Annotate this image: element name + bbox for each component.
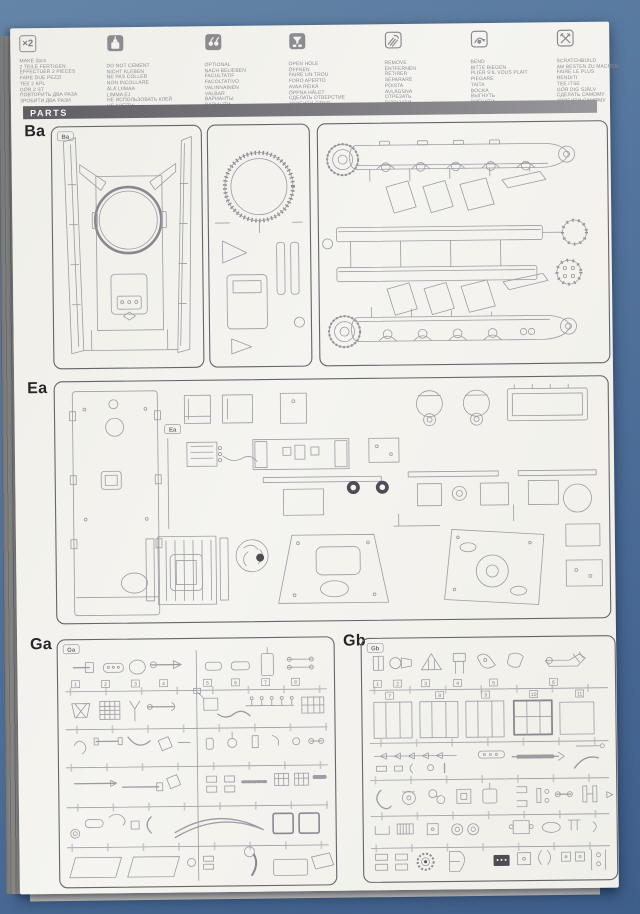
legend-column-make2: ×2 MAKE 2pcs 2 TEILE FERTIGEN EFFECTUER … (19, 34, 108, 105)
legend-text-remove: REMOVE ENTFERNEN RETIRER SEPARARE POISTA… (385, 60, 474, 107)
legend-text-no-cement: DO NOT CEMENT NICHT KLEBEN NE PAS COLLER… (107, 63, 196, 110)
no-glue-icon (106, 34, 124, 52)
svg-text:2: 2 (396, 682, 399, 688)
svg-text:6: 6 (552, 680, 555, 686)
svg-text:7: 7 (388, 694, 391, 700)
legend-column-optional: OPTIONAL NACH BELIEBEN FACULTATIF FACOLT… (204, 32, 293, 109)
legend-column-open-hole: OPEN HOLE ÖFFNEN FAIRE UN TROU FORO APER… (288, 31, 377, 108)
scratchbuild-icon (556, 29, 574, 47)
legend-column-bend: BEND BITTE BIEGEN PLIER S'IL VOUS PLAIT … (470, 29, 559, 106)
legend-text-optional: OPTIONAL NACH BELIEBEN FACULTATIF FACOLT… (205, 62, 294, 109)
legend-text-make2: MAKE 2pcs 2 TEILE FERTIGEN EFFECTUER 2 P… (19, 58, 108, 105)
svg-text:10: 10 (531, 692, 537, 698)
svg-text:9: 9 (484, 693, 487, 699)
legend-column-no-cement: DO NOT CEMENT NICHT KLEBEN NE PAS COLLER… (106, 33, 195, 110)
sprue-ea-diagram: Ea (52, 374, 615, 628)
sprue-label-ba: Ba (24, 123, 45, 141)
svg-text:8: 8 (438, 693, 441, 699)
instruction-page: ×2 MAKE 2pcs 2 TEILE FERTIGEN EFFECTUER … (10, 22, 619, 895)
svg-text:Ga: Ga (67, 648, 76, 654)
remove-icon (384, 31, 402, 49)
svg-text:5: 5 (492, 680, 495, 686)
open-hole-icon (288, 32, 306, 50)
svg-text:3: 3 (134, 682, 137, 688)
parts-bar-label: PARTS (23, 107, 68, 118)
legend-column-remove: REMOVE ENTFERNEN RETIRER SEPARARE POISTA… (384, 30, 473, 107)
sprue-label-ga: Ga (30, 636, 52, 654)
legend-text-scratchbuild: SCRATCHBUILD AM BESTEN ZU MACHEN FAIRE L… (556, 58, 640, 105)
svg-text:7: 7 (264, 680, 267, 686)
svg-text:Gb: Gb (371, 646, 380, 652)
svg-text:1: 1 (376, 682, 379, 688)
svg-text:4: 4 (456, 681, 459, 687)
svg-text:4: 4 (162, 681, 165, 687)
svg-text:11: 11 (577, 691, 582, 697)
sprue-ga-diagram: Ga 1 2 3 4 5 6 7 8 (55, 635, 339, 890)
legend-text-open-hole: OPEN HOLE ÖFFNEN FAIRE UN TROU FORO APER… (289, 61, 378, 108)
svg-text:8: 8 (294, 680, 297, 686)
bend-icon (470, 30, 488, 48)
sprue-gb-diagram: Gb 1 2 3 4 5 6 7 8 9 10 11 (359, 634, 620, 887)
svg-text:Ea: Ea (169, 428, 177, 434)
svg-text:6: 6 (234, 680, 237, 686)
photo-background: ×2 MAKE 2pcs 2 TEILE FERTIGEN EFFECTUER … (0, 0, 640, 914)
svg-text:1: 1 (74, 682, 77, 688)
optional-icon (204, 33, 222, 51)
x2-icon: ×2 (19, 35, 36, 52)
legend-text-bend: BEND BITTE BIEGEN PLIER S'IL VOUS PLAIT … (470, 59, 559, 106)
legend-column-scratchbuild: SCRATCHBUILD AM BESTEN ZU MACHEN FAIRE L… (556, 28, 640, 105)
sprue-label-ea: Ea (27, 380, 47, 398)
sprue-ba-diagram: Ba (49, 119, 612, 373)
svg-text:2: 2 (104, 682, 107, 688)
svg-text:5: 5 (206, 681, 209, 687)
svg-text:3: 3 (424, 681, 427, 687)
